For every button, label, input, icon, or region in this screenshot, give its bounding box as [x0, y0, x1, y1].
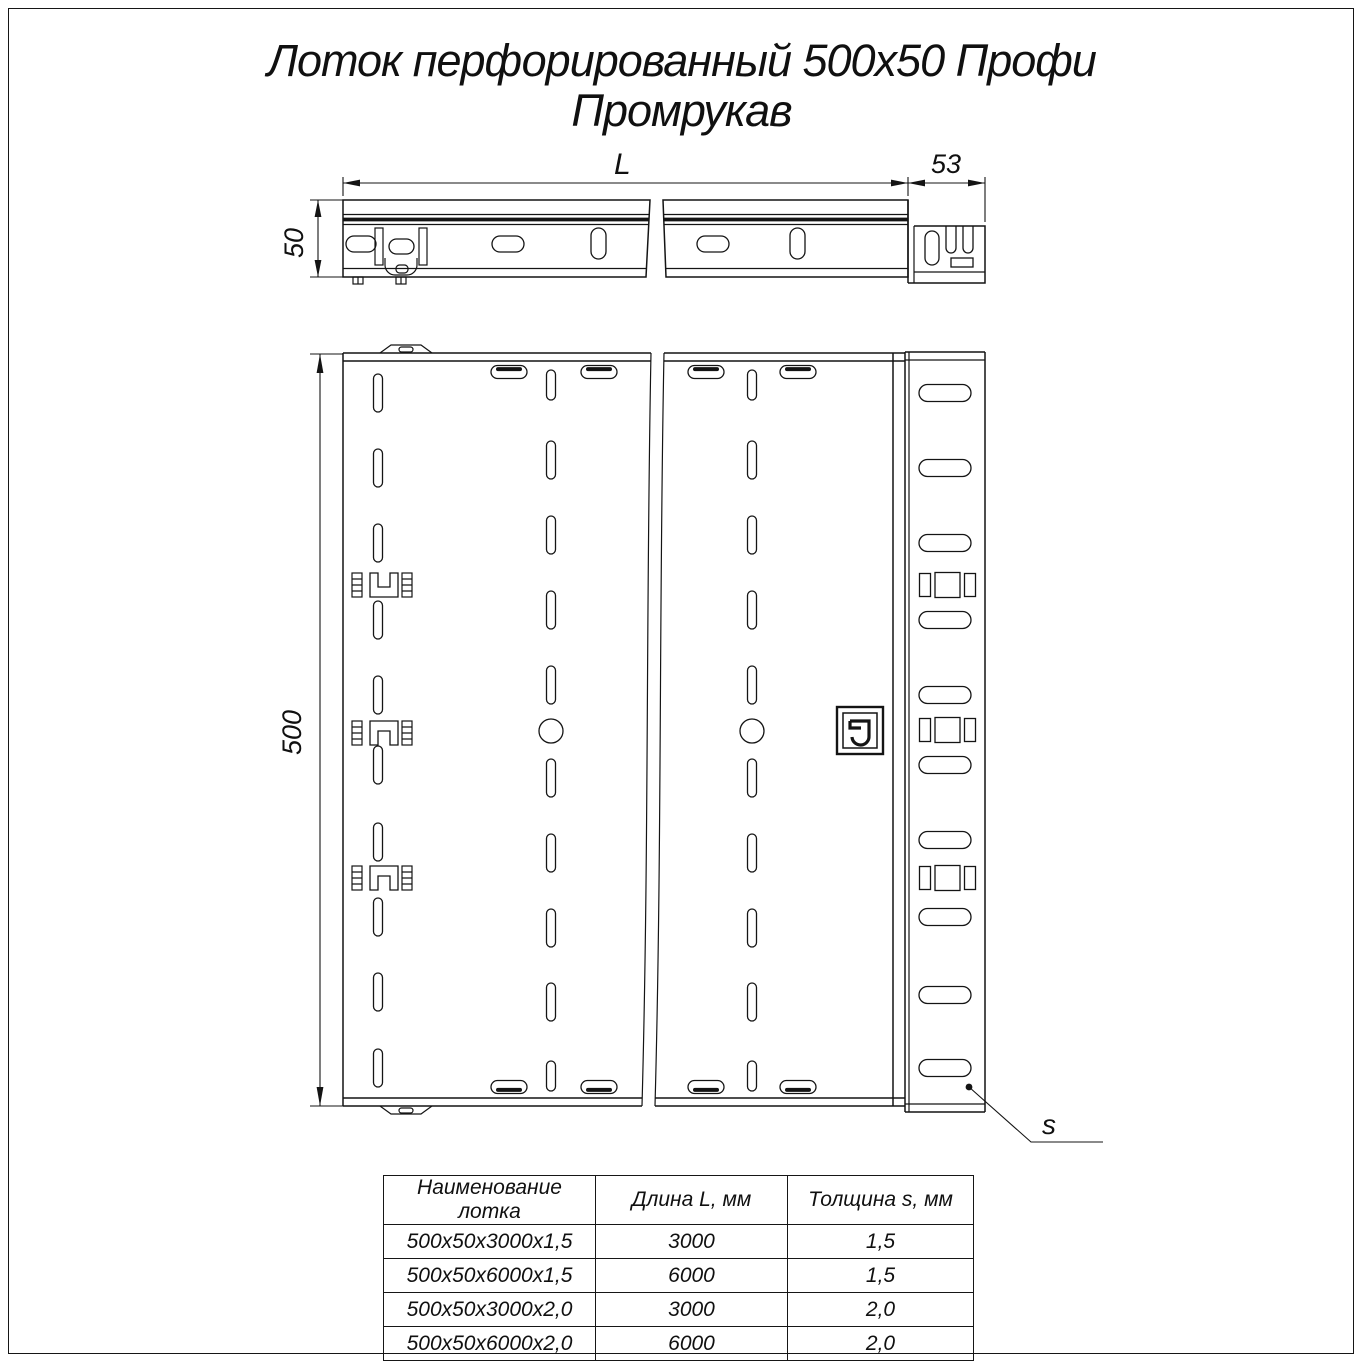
spec-table: Наименование лотка Длина L, мм Толщина s… — [383, 1175, 974, 1361]
spec-table-header-row: Наименование лотка Длина L, мм Толщина s… — [384, 1176, 974, 1225]
technical-drawing: L 53 50 — [0, 0, 1363, 1363]
u-cutout — [370, 573, 398, 597]
spec-table-row: 500x50x6000x1,5 6000 1,5 — [384, 1259, 974, 1293]
dimension-50-label: 50 — [279, 228, 309, 258]
plan-bottom-latch — [380, 1106, 432, 1114]
thickness-callout: s — [966, 1084, 1103, 1142]
dimension-500: 500 — [277, 354, 343, 1106]
spec-table-row: 500x50x3000x2,0 3000 2,0 — [384, 1293, 974, 1327]
side-view — [343, 200, 985, 284]
side-view-right-segment — [663, 200, 908, 277]
plan-left-panel — [343, 353, 651, 1106]
plan-view — [343, 345, 985, 1114]
dimension-500-label: 500 — [277, 710, 307, 755]
side-view-end-connector — [908, 200, 985, 283]
connector-top-notches — [946, 226, 973, 253]
spec-header-thickness: Толщина s, мм — [788, 1176, 974, 1225]
dimension-50: 50 — [279, 200, 345, 277]
promrukav-logo-icon — [837, 707, 883, 754]
spec-table-row: 500x50x3000x1,5 3000 1,5 — [384, 1225, 974, 1259]
spec-header-name: Наименование лотка — [384, 1176, 596, 1225]
spec-cell-thickness: 1,5 — [788, 1225, 974, 1259]
side-vertical-hole — [591, 228, 606, 259]
n-cutout — [370, 866, 398, 890]
dimension-53-label: 53 — [931, 149, 961, 179]
side-vertical-hole — [790, 228, 805, 259]
plan-top-latch — [380, 345, 432, 353]
side-oval-hole — [697, 236, 729, 252]
connector-vertical-hole — [925, 231, 939, 265]
side-view-tabs — [353, 277, 406, 284]
spec-cell-thickness: 1,5 — [788, 1259, 974, 1293]
spec-cell-name: 500x50x6000x2,0 — [384, 1327, 596, 1361]
spec-cell-thickness: 2,0 — [788, 1327, 974, 1361]
thickness-label: s — [1042, 1109, 1056, 1140]
dimension-L-label: L — [614, 148, 631, 181]
perforation-column-left-2 — [539, 370, 563, 1091]
spec-cell-length: 6000 — [596, 1327, 788, 1361]
connector-strip-perforations — [919, 385, 976, 1077]
spec-cell-length: 6000 — [596, 1259, 788, 1293]
spec-header-length: Длина L, мм — [596, 1176, 788, 1225]
perforation-column-right — [740, 370, 764, 1091]
side-oval-hole — [346, 236, 376, 252]
spec-cell-thickness: 2,0 — [788, 1293, 974, 1327]
spec-cell-length: 3000 — [596, 1225, 788, 1259]
spec-cell-name: 500x50x3000x1,5 — [384, 1225, 596, 1259]
spec-table-row: 500x50x6000x2,0 6000 2,0 — [384, 1327, 974, 1361]
round-hole — [740, 719, 764, 743]
round-hole — [539, 719, 563, 743]
side-view-left-segment — [343, 200, 650, 284]
edge-slots-right-panel — [688, 366, 816, 1094]
spec-cell-name: 500x50x6000x1,5 — [384, 1259, 596, 1293]
side-oval-hole — [492, 236, 524, 252]
n-cutout — [370, 721, 398, 745]
spec-cell-length: 3000 — [596, 1293, 788, 1327]
connector-small-hole — [951, 258, 973, 267]
plan-connector-strip — [905, 352, 985, 1112]
spec-cell-name: 500x50x3000x2,0 — [384, 1293, 596, 1327]
